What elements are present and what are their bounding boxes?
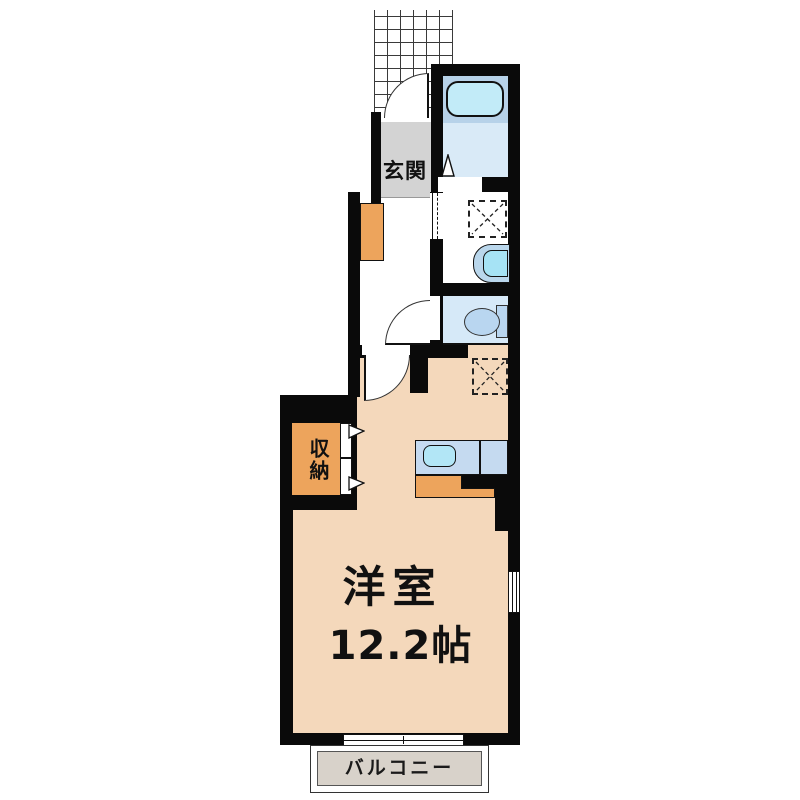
toilet-bowl-icon <box>464 308 500 336</box>
wall-genkan-left <box>371 112 381 203</box>
bathtub-icon <box>446 81 504 117</box>
balcony-floor: バルコニー <box>317 751 482 786</box>
washing-machine-space <box>468 200 507 238</box>
floorplan-canvas: 玄関 <box>0 0 800 800</box>
main-room-size: 12.2帖 <box>318 624 483 668</box>
kitchen-base-cabinet-ext <box>461 488 495 498</box>
main-room-floor <box>357 345 508 733</box>
shoe-cabinet <box>360 203 384 261</box>
washbasin-bowl <box>483 250 508 277</box>
balcony: バルコニー <box>310 745 489 793</box>
wall-kitchen-back <box>462 475 508 488</box>
closet-door-triangle-icon <box>348 476 365 491</box>
sliding-door-line <box>432 193 433 239</box>
closet-label: 収納 <box>303 432 329 488</box>
wall-right <box>508 64 520 745</box>
toilet-door-opening <box>430 296 440 340</box>
refrigerator-space <box>472 358 508 395</box>
kitchen-base-cabinet <box>415 475 462 498</box>
main-room-name: 洋室 <box>310 565 475 612</box>
window-line <box>512 572 513 612</box>
counter-divider <box>479 441 481 474</box>
kitchen-sink-icon <box>423 445 456 467</box>
closet-door-triangle-icon <box>348 424 365 439</box>
window-center-tick <box>403 736 404 744</box>
x-mark-icon <box>474 360 506 393</box>
wall-kitchen-corner <box>495 488 520 531</box>
sliding-door-dashed-line <box>437 193 439 239</box>
wall-stub <box>410 345 428 393</box>
main-room-door-opening <box>362 345 410 355</box>
bathroom-door-fold-icon <box>441 154 455 177</box>
wall-washroom-toilet <box>443 283 508 296</box>
balcony-label: バルコニー <box>345 758 455 779</box>
window-line <box>516 572 517 612</box>
genkan-label: 玄関 <box>379 160 431 183</box>
wall-bath-top <box>431 64 520 76</box>
washroom-sliding-door <box>430 193 443 239</box>
window-right-icon <box>508 571 520 613</box>
x-mark-icon <box>470 202 505 236</box>
wall-hall-left <box>348 192 360 397</box>
bathroom-door-opening <box>438 177 482 192</box>
